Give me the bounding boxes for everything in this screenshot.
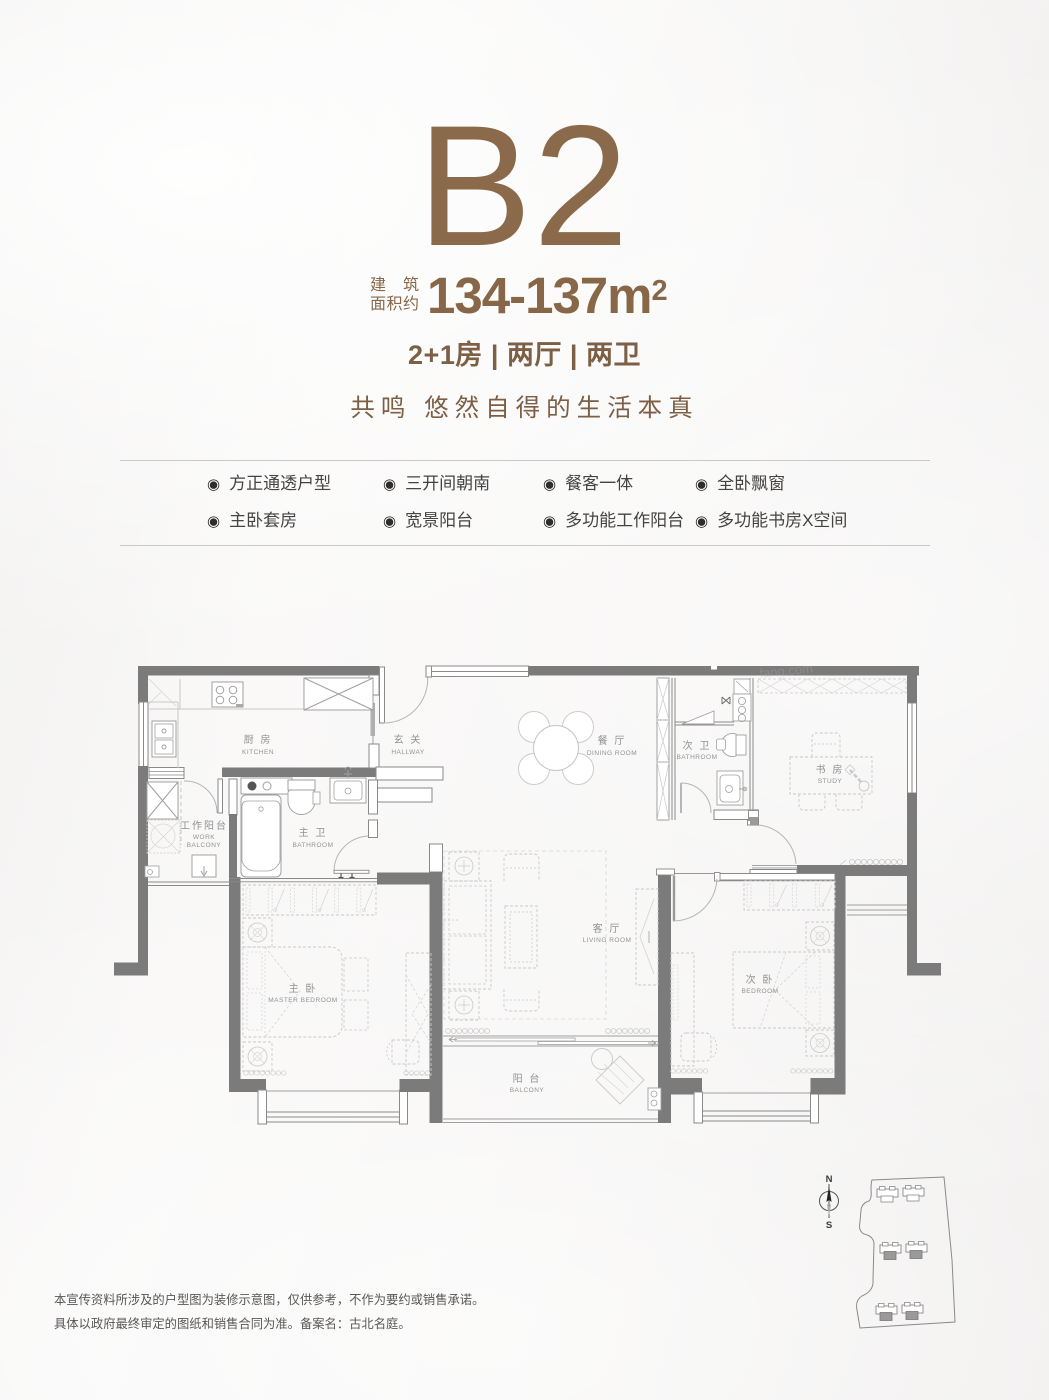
svg-text:客 厅: 客 厅 <box>593 922 622 935</box>
svg-text:LIVING ROOM: LIVING ROOM <box>583 937 632 944</box>
svg-text:STUDY: STUDY <box>818 778 843 785</box>
svg-text:主 卫: 主 卫 <box>299 827 328 839</box>
svg-text:餐 厅: 餐 厅 <box>598 734 627 747</box>
svg-text:主 卧: 主 卧 <box>289 982 318 995</box>
svg-text:BATHROOM: BATHROOM <box>676 754 717 761</box>
svg-text:厨 房: 厨 房 <box>244 733 273 746</box>
svg-text:阳 台: 阳 台 <box>513 1072 542 1085</box>
svg-text:次 卧: 次 卧 <box>746 973 775 986</box>
svg-text:KITCHEN: KITCHEN <box>242 749 274 756</box>
svg-text:BALCONY: BALCONY <box>510 1087 545 1094</box>
svg-text:BATHROOM: BATHROOM <box>292 842 333 849</box>
svg-text:fang.com: fang.com <box>759 660 814 681</box>
svg-text:N: N <box>826 1174 833 1185</box>
svg-text:玄 关: 玄 关 <box>394 733 423 746</box>
svg-text:工作阳台: 工作阳台 <box>180 819 228 832</box>
svg-text:DINING ROOM: DINING ROOM <box>587 750 637 757</box>
svg-text:次 卫: 次 卫 <box>683 739 712 752</box>
svg-text:BEDROOM: BEDROOM <box>741 988 778 995</box>
svg-text:书 房: 书 房 <box>816 763 845 776</box>
svg-text:S: S <box>826 1220 832 1231</box>
svg-text:HALLWAY: HALLWAY <box>391 749 425 756</box>
svg-text:WORK: WORK <box>193 834 215 841</box>
svg-text:BALCONY: BALCONY <box>187 842 222 849</box>
svg-text:MASTER BEDROOM: MASTER BEDROOM <box>268 997 337 1004</box>
